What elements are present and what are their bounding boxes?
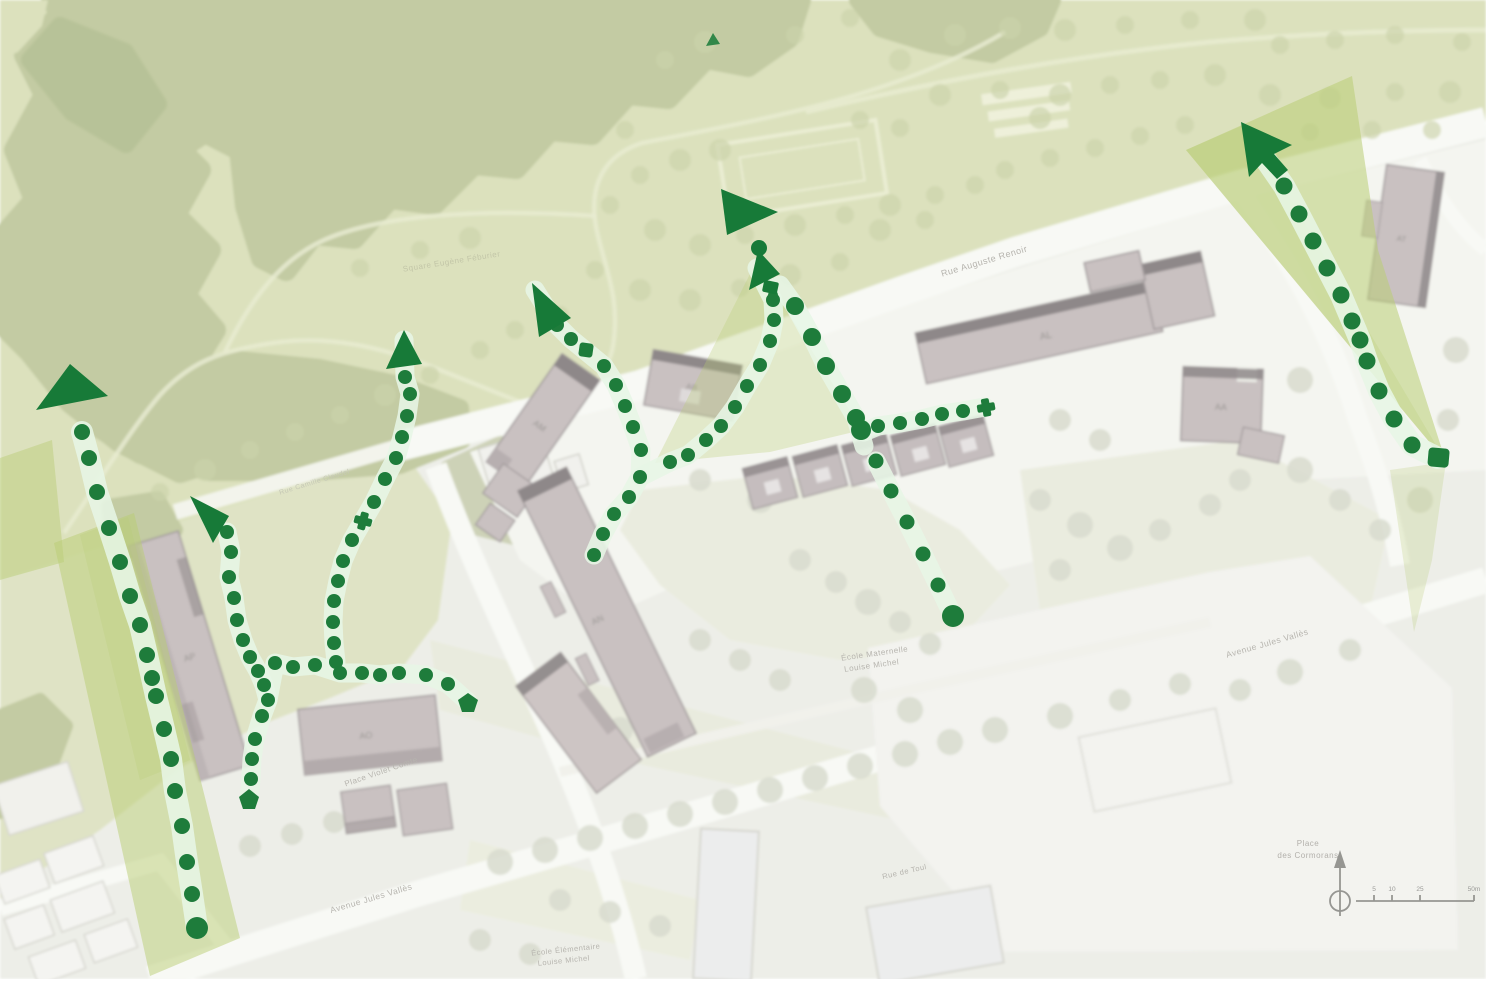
svg-text:AO: AO (359, 730, 373, 741)
svg-text:25: 25 (1416, 886, 1424, 893)
svg-text:AA: AA (1215, 402, 1227, 412)
svg-text:AT: AT (1396, 234, 1407, 244)
svg-text:10: 10 (1388, 886, 1396, 893)
svg-text:5: 5 (1372, 886, 1376, 893)
svg-text:Place: Place (1297, 839, 1320, 848)
svg-text:des Cormorans: des Cormorans (1277, 851, 1338, 860)
svg-text:50m: 50m (1468, 886, 1481, 893)
